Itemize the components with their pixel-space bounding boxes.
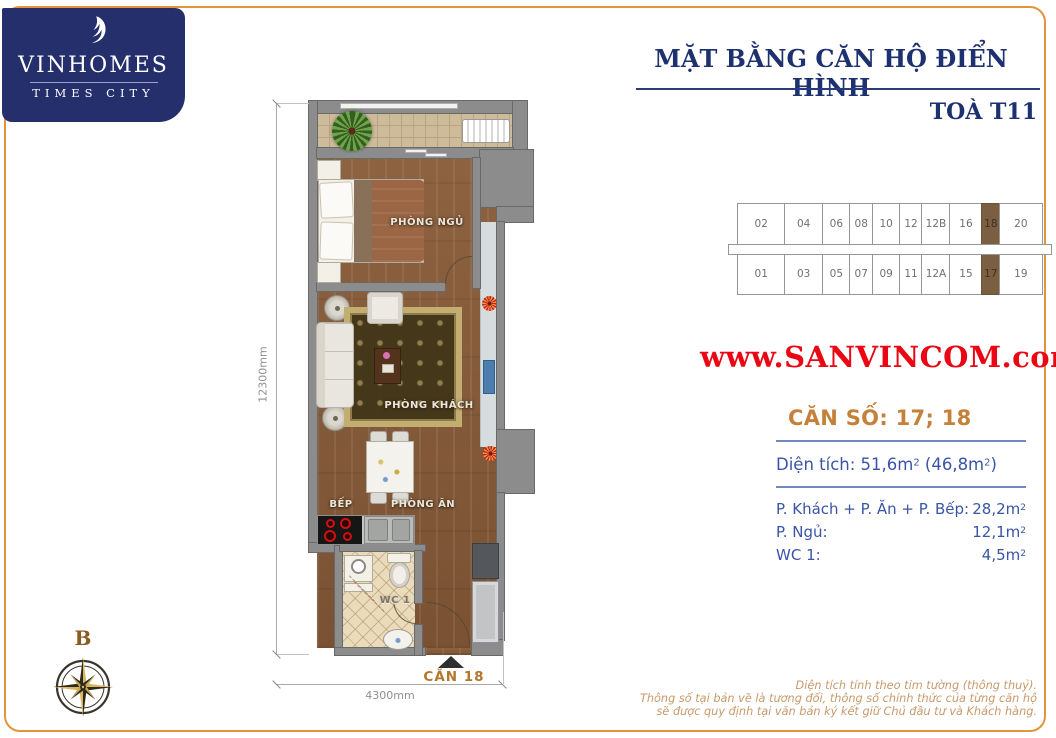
unit-number-heading: CĂN SỐ: 17; 18 xyxy=(788,406,972,430)
key-plan-unit-15: 15 xyxy=(949,253,983,295)
area-row-label: WC 1: xyxy=(776,546,821,564)
entry-cabinet xyxy=(472,581,499,643)
key-plan-unit-10: 10 xyxy=(872,203,901,245)
vertical-dimension-line xyxy=(276,103,277,655)
total-area-line: Diện tích: 51,6m2 (46,8m2) xyxy=(776,455,997,474)
key-plan-unit-12A: 12A xyxy=(921,253,950,295)
wc-sink xyxy=(383,629,413,650)
green-potted-plant-icon xyxy=(332,111,372,151)
key-plan-unit-04: 04 xyxy=(784,203,823,245)
bed-fold xyxy=(354,180,374,262)
burner-icon xyxy=(326,519,335,528)
entry-cabinet xyxy=(472,543,499,579)
window-ledge-strip xyxy=(480,222,497,447)
title-underline xyxy=(636,88,1040,90)
area-row: P. Ngủ:12,1m2 xyxy=(776,520,1026,543)
page-title: MẶT BẰNG CĂN HỘ ĐIỂN HÌNH xyxy=(622,44,1040,102)
toilet-bowl xyxy=(389,562,410,588)
sofa xyxy=(316,322,354,408)
wall xyxy=(497,430,534,493)
key-plan-unit-08: 08 xyxy=(849,203,873,245)
disclaimer-line: Diện tích tính theo tim tường (thông thu… xyxy=(597,680,1037,693)
dining-room-label: PHÒNG ĂN xyxy=(373,499,473,510)
key-plan-unit-01: 01 xyxy=(737,253,785,295)
dimension-extension xyxy=(503,612,504,684)
unit-entrance-label: CĂN 18 xyxy=(418,669,490,685)
red-potted-plant-icon xyxy=(483,446,498,461)
tray xyxy=(382,364,394,373)
bedroom-label: PHÒNG NGỦ xyxy=(377,217,477,228)
key-plan-unit-17: 17 xyxy=(981,253,1000,295)
dimension-extension xyxy=(277,654,309,655)
area-row: P. Khách + P. Ăn + P. Bếp:28,2m2 xyxy=(776,497,1026,520)
horizontal-dimension-line xyxy=(276,684,503,685)
entry-threshold-floor xyxy=(425,648,472,655)
kitchen-label: BẾP xyxy=(316,499,366,510)
disclaimer-line: Thông số tại bản vẽ là tương đối, thông … xyxy=(597,693,1037,706)
wall xyxy=(335,648,425,655)
disclaimer-text: Diện tích tính theo tim tường (thông thu… xyxy=(597,680,1037,718)
wall xyxy=(480,150,533,207)
pillow xyxy=(319,221,353,260)
sink-basin xyxy=(368,519,388,541)
key-plan-unit-02: 02 xyxy=(737,203,785,245)
balcony-sliding-door[interactable] xyxy=(425,153,447,157)
key-plan-unit-07: 07 xyxy=(849,253,873,295)
disclaimer-line: sẽ được quy định tại văn bản ký kết giữ … xyxy=(597,706,1037,719)
key-plan-unit-11: 11 xyxy=(899,253,923,295)
armchair xyxy=(367,292,403,324)
wall xyxy=(497,207,533,222)
wall xyxy=(317,283,445,291)
area-label: Diện tích: xyxy=(776,455,861,474)
burner-icon xyxy=(343,532,352,541)
key-plan-top-row: 02040608101212B161820 xyxy=(737,203,1043,245)
nightstand xyxy=(317,262,341,283)
wall xyxy=(340,545,425,551)
burner-icon xyxy=(340,518,351,529)
burner-icon xyxy=(324,530,336,542)
dining-table xyxy=(366,441,414,493)
key-plan: 02040608101212B161820 01030507091112A151… xyxy=(737,203,1043,295)
key-plan-unit-18: 18 xyxy=(981,203,1000,245)
area-row-value: 4,5m2 xyxy=(982,546,1026,564)
watermark-url: www.SANVINCOM.com xyxy=(700,340,1050,374)
area-row: WC 1:4,5m2 xyxy=(776,543,1026,566)
wall xyxy=(497,222,504,430)
key-plan-unit-03: 03 xyxy=(784,253,823,295)
washing-machine-door xyxy=(351,559,366,574)
brochure-page: VINHOMES TIMES CITY MẶT BẰNG CĂN HỘ ĐIỂN… xyxy=(0,0,1056,738)
area-row-label: P. Khách + P. Ăn + P. Bếp: xyxy=(776,500,969,518)
balcony-bench xyxy=(462,119,510,143)
sink-basin xyxy=(392,519,410,541)
logo-divider xyxy=(30,82,158,83)
height-dimension: 12300mm xyxy=(257,320,270,430)
entrance-arrow-icon xyxy=(438,656,464,668)
pillow xyxy=(319,181,354,219)
living-room-label: PHÒNG KHÁCH xyxy=(379,400,479,411)
key-plan-bottom-row: 01030507091112A151719 xyxy=(737,253,1043,295)
compass-rose-icon xyxy=(50,650,116,720)
key-plan-unit-19: 19 xyxy=(999,253,1043,295)
tower-name: TOÀ T11 xyxy=(625,99,1037,125)
vinhomes-logo: VINHOMES TIMES CITY xyxy=(2,8,185,122)
key-plan-unit-16: 16 xyxy=(949,203,983,245)
key-plan-unit-20: 20 xyxy=(999,203,1043,245)
wc-label: WC 1 xyxy=(370,595,420,606)
swallow-bird-icon xyxy=(76,14,112,50)
red-potted-plant-icon xyxy=(482,296,497,311)
key-plan-unit-09: 09 xyxy=(872,253,901,295)
width-dimension: 4300mm xyxy=(330,689,450,702)
logo-subtitle-text: TIMES CITY xyxy=(2,86,185,100)
key-plan-unit-12: 12 xyxy=(899,203,923,245)
key-plan-unit-06: 06 xyxy=(822,203,851,245)
logo-brand-text: VINHOMES xyxy=(2,54,185,78)
dimension-extension xyxy=(277,103,309,104)
wall xyxy=(415,625,422,655)
flower-vase xyxy=(383,352,390,359)
area-row-label: P. Ngủ: xyxy=(776,523,828,541)
wall xyxy=(335,546,342,655)
room-area-table: P. Khách + P. Ăn + P. Bếp:28,2m2P. Ngủ:1… xyxy=(776,497,1026,566)
divider-line xyxy=(776,486,1026,488)
key-plan-unit-05: 05 xyxy=(822,253,851,295)
compass-north-label: B xyxy=(48,626,118,650)
area-row-value: 28,2m2 xyxy=(972,500,1026,518)
balcony-railing-glass xyxy=(340,103,458,109)
nightstand xyxy=(317,160,341,181)
key-plan-unit-12B: 12B xyxy=(921,203,950,245)
key-plan-corridor xyxy=(728,244,1052,255)
area-row-value: 12,1m2 xyxy=(972,523,1026,541)
blue-planter xyxy=(483,360,495,394)
divider-line xyxy=(776,440,1026,442)
balcony-sliding-door[interactable] xyxy=(405,149,427,153)
